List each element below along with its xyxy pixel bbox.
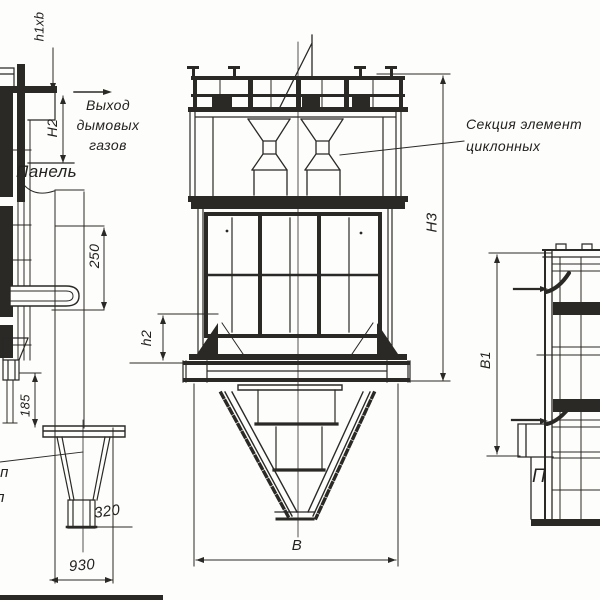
dim-B: В bbox=[284, 537, 310, 554]
gas-exit-line2: дымовых bbox=[62, 115, 154, 135]
dim-H2: Н2 bbox=[44, 98, 60, 158]
edge-text-fragment-bottom: л bbox=[0, 489, 5, 506]
panel-label: Панель bbox=[16, 162, 77, 182]
partial-label: П bbox=[532, 466, 546, 488]
drawing-canvas bbox=[0, 0, 600, 600]
dim-h1xb: h1хb bbox=[32, 0, 47, 57]
dim-250: 250 bbox=[86, 226, 102, 286]
title-block-edge bbox=[0, 595, 163, 600]
front-view bbox=[130, 35, 464, 566]
edge-text-fragment-top: чп bbox=[0, 464, 9, 481]
gas-exit-line1: Выход bbox=[62, 95, 154, 115]
dim-H3: Н3 bbox=[424, 193, 441, 253]
section-line2: циклонных bbox=[466, 135, 600, 157]
cyclone-element-right bbox=[301, 119, 343, 195]
gas-exit-label: Выход дымовых газов bbox=[62, 95, 154, 155]
dim-B1: В1 bbox=[477, 335, 493, 385]
drawing-sheet: { "drawing_type": "cyclone-dust-collecto… bbox=[0, 0, 600, 600]
gas-exit-line3: газов bbox=[62, 135, 154, 155]
dim-185: 185 bbox=[18, 376, 33, 436]
cyclone-element-left bbox=[248, 119, 290, 195]
section-line1: Секция элемент bbox=[466, 113, 600, 135]
cyclone-section-label: Секция элемент циклонных bbox=[466, 113, 600, 157]
dim-h2: h2 bbox=[138, 313, 154, 363]
